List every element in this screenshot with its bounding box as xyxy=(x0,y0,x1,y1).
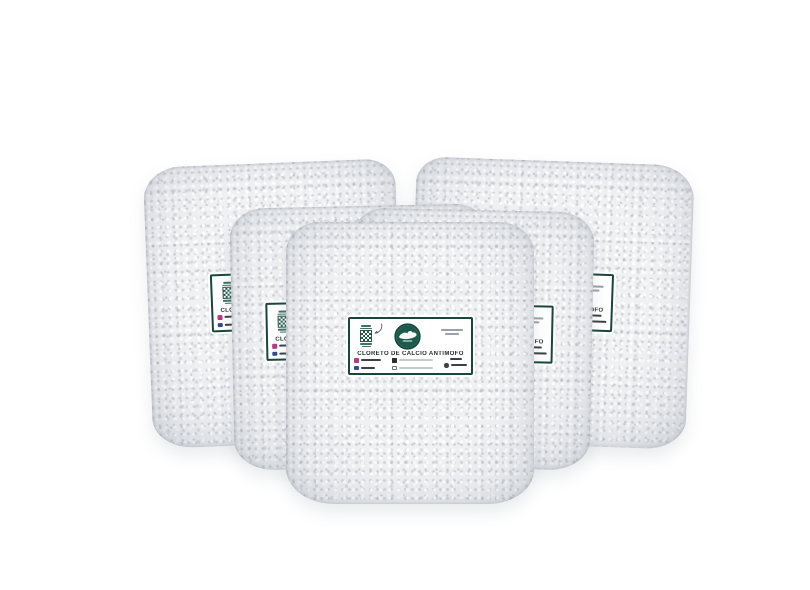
label-contact-rows xyxy=(354,358,467,370)
product-label: CLORETO DE CÁLCIO ANTIMOFO xyxy=(348,317,473,375)
contact-heading-text xyxy=(450,358,462,360)
email-address-text xyxy=(399,359,433,361)
qr-code-pattern xyxy=(360,330,372,342)
instagram-handle-text xyxy=(361,359,381,361)
curved-arrow-icon xyxy=(372,323,383,336)
instagram-icon xyxy=(272,344,277,349)
whatsapp-row xyxy=(444,363,467,368)
contact-column xyxy=(444,358,467,370)
contact-heading-row xyxy=(450,358,462,360)
email-icon xyxy=(392,358,397,363)
website-url-text xyxy=(399,367,433,369)
instagram-row xyxy=(354,358,381,363)
web-column xyxy=(392,358,433,370)
qr-caption-line xyxy=(362,346,371,348)
qr-caption-line xyxy=(361,325,371,327)
website-icon xyxy=(392,366,397,371)
qr-caption-line xyxy=(360,328,372,330)
whatsapp-icon xyxy=(444,363,449,368)
spec-line xyxy=(441,329,463,331)
facebook-icon xyxy=(218,323,223,328)
instagram-icon xyxy=(354,358,359,363)
facebook-icon xyxy=(354,366,359,371)
label-top-row xyxy=(354,322,467,350)
spec-text-lines xyxy=(437,329,467,335)
facebook-row xyxy=(354,366,381,371)
product-title: CLORETO DE CÁLCIO ANTIMOFO xyxy=(354,351,467,355)
phone-number-text xyxy=(451,364,467,366)
qr-caption-line xyxy=(360,343,372,345)
brand-name-text xyxy=(403,340,413,342)
product-photo: CLORETO DE CÁLCIO ANTIMOFO xyxy=(0,0,810,590)
product-bag-front: CLORETO DE CÁLCIO ANTIMOFO xyxy=(286,222,534,504)
qr-code-icon xyxy=(354,325,378,347)
website-row xyxy=(392,366,433,371)
facebook-icon xyxy=(272,351,277,356)
phone-number-text xyxy=(590,321,606,324)
instagram-icon xyxy=(217,315,222,320)
social-column xyxy=(354,358,381,370)
brand-logo-icon xyxy=(394,323,421,350)
email-row xyxy=(392,358,433,363)
spec-line xyxy=(445,333,459,335)
facebook-handle-text xyxy=(361,367,375,369)
